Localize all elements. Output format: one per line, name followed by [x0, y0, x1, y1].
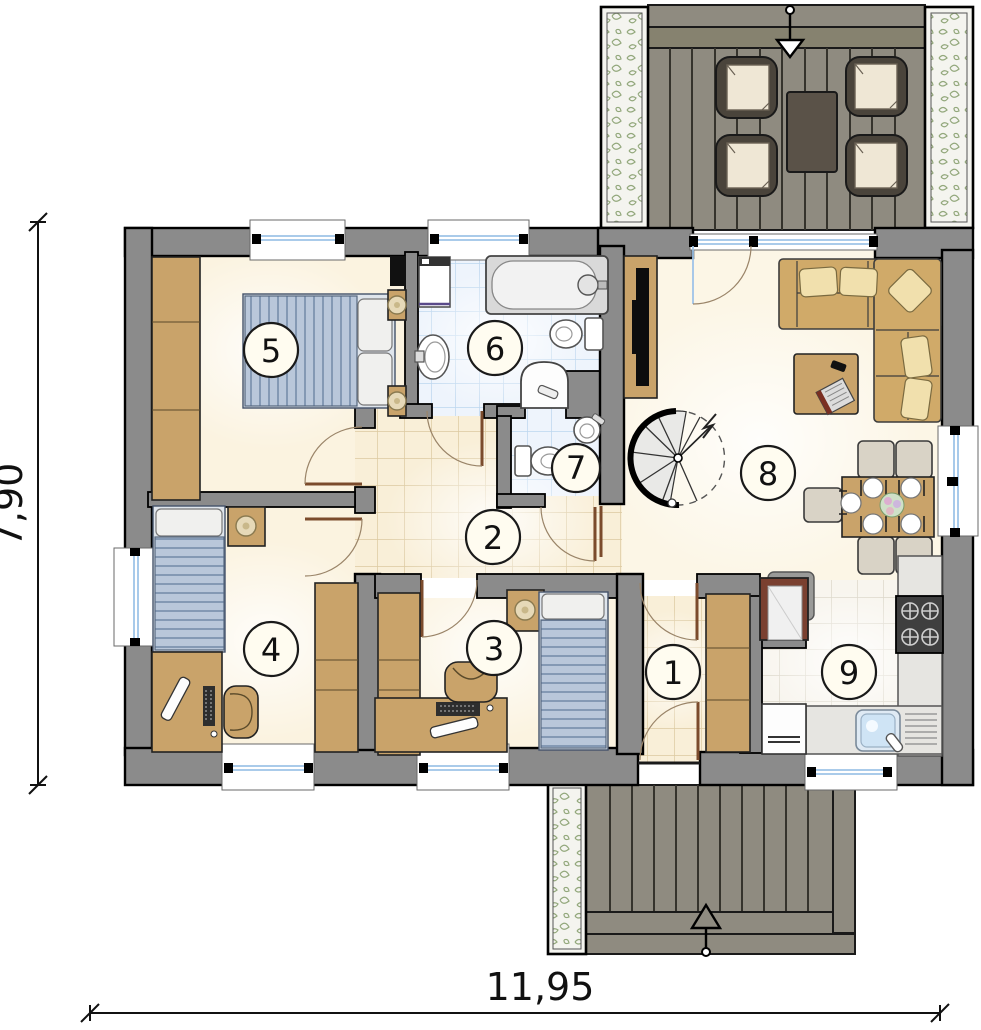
nightstand-lamp-top-icon: [388, 290, 406, 320]
window-kitchen-bottom: [805, 750, 897, 790]
desk-icon: [375, 698, 507, 752]
deck-right-band: [833, 785, 855, 933]
room-5-label: 5: [261, 332, 281, 370]
window-bedroom5-top: [250, 220, 345, 260]
deck-planter-left: [548, 783, 586, 954]
deck-step-2: [585, 934, 855, 954]
terrace-planter-left: [601, 7, 648, 228]
sink-icon: [856, 710, 904, 753]
corner-fridge-unit-icon: [760, 572, 814, 640]
room-7-label: 7: [566, 449, 586, 487]
dimension-width-label: 11,95: [486, 965, 595, 1009]
window-living-right: [938, 426, 978, 537]
nightstand-lamp-icon: [228, 507, 265, 546]
entry-furniture: [706, 594, 750, 752]
dining-chair-icon: [804, 488, 842, 522]
wall-block-vestibule-mid: [355, 487, 375, 513]
desk-icon: [152, 652, 222, 752]
nightstand-lamp-bottom-icon: [388, 386, 406, 416]
terrace-planter-right: [925, 7, 973, 228]
kitchen-counter-bottom: [806, 706, 942, 754]
room-4-label: 4: [261, 631, 281, 669]
terrace-armchair-top-right: [846, 57, 907, 116]
exterior-wall-left-lower: [125, 645, 152, 755]
exterior-wall-right-upper: [942, 250, 973, 430]
window-bathroom-top: [428, 220, 529, 260]
single-bed-icon: [153, 506, 225, 652]
dimension-height-label: 7,90: [0, 463, 31, 548]
terrace-table: [787, 92, 837, 172]
bathtub-icon: [486, 256, 608, 314]
room-9-label: 9: [839, 654, 859, 692]
tv-cabinet-icon: [624, 256, 657, 398]
wardrobe-icon: [152, 257, 200, 500]
terrace-armchair-bottom-right: [846, 135, 907, 196]
exterior-wall-bottom-4: [700, 752, 808, 785]
room-2-label: 2: [483, 519, 503, 557]
dining-chair-icon: [858, 441, 894, 478]
cooktop-icon: [896, 596, 943, 653]
entrance-deck: [548, 783, 855, 956]
wardrobe-icon: [706, 594, 750, 752]
window-bedroom4-bottom: [222, 744, 314, 790]
wall-entry-west: [617, 574, 643, 754]
room-3-label: 3: [484, 630, 504, 668]
window-bedroom4-left: [114, 548, 154, 646]
room-8-label: 8: [758, 455, 778, 493]
top-terrace: [601, 5, 973, 230]
floor-plan-drawing: 1 2 3 4 5 6 7 8 9 7,90 11,95: [0, 0, 981, 1030]
dining-chair-icon: [858, 537, 894, 574]
washing-machine-icon: [419, 257, 450, 307]
dimension-vertical: 7,90: [0, 213, 47, 794]
deck-planks: [585, 785, 833, 912]
dishwasher-icon: [762, 704, 806, 754]
exterior-wall-top-3: [527, 228, 602, 256]
toilet-icon: [550, 318, 603, 350]
dimension-horizontal: 11,95: [81, 965, 949, 1022]
wardrobe-icon: [315, 583, 358, 752]
exterior-wall-right-lower: [942, 533, 973, 785]
wall-wc-south: [497, 494, 545, 507]
dining-chair-icon: [896, 441, 932, 478]
terrace-armchair-bottom-left: [716, 135, 777, 196]
exterior-wall-bottom-1: [125, 748, 225, 785]
single-bed-icon: [539, 592, 608, 750]
room-6-label: 6: [485, 330, 505, 368]
wall-bedroom5-bathroom: [405, 252, 418, 410]
coffee-table-icon: [794, 354, 858, 415]
flower-centerpiece-icon: [880, 493, 904, 517]
floor-plan-page: 1 2 3 4 5 6 7 8 9 7,90 11,95: [0, 0, 981, 1030]
room-1-label: 1: [663, 654, 683, 692]
terrace-armchair-top-left: [716, 57, 777, 118]
wall-bathroom-corner-block: [566, 371, 602, 418]
bidet-cabinet-icon: [521, 362, 568, 408]
desk-chair-icon: [224, 686, 258, 738]
tv-panel-icon: [390, 256, 406, 286]
